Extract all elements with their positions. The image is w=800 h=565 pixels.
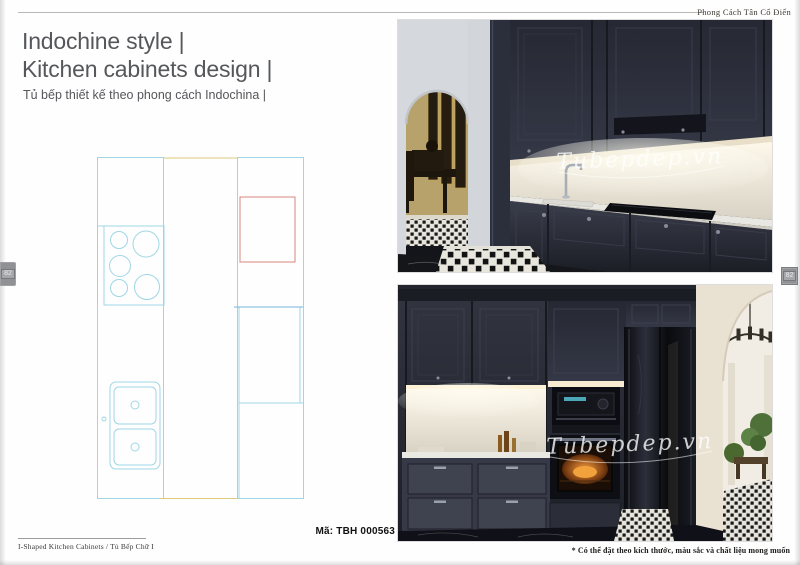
catalog-page: Phong Cách Tân Cổ Điển Indochine style |… xyxy=(0,0,800,565)
kitchen-photo-top: Tubepdep.vn xyxy=(398,20,772,272)
lit-niche xyxy=(398,383,550,458)
appliance-column xyxy=(548,301,626,531)
footer-rule xyxy=(18,538,146,539)
page-number-tab-left: 82 xyxy=(0,262,16,286)
plan-sink xyxy=(102,382,160,469)
footer-note: * Có thể đặt theo kích thước, màu sắc và… xyxy=(572,546,790,555)
page-number-right: 82 xyxy=(783,271,797,281)
kitchen-photo-bottom: Tubepdep.vn xyxy=(398,285,772,541)
header-label: Phong Cách Tân Cổ Điển xyxy=(697,7,791,17)
left-lower-drawers xyxy=(402,458,550,531)
page-subtitle: Tủ bếp thiết kế theo phong cách Indochin… xyxy=(23,88,266,102)
product-code: Mã: TBH 000563 xyxy=(316,526,396,537)
header-rule xyxy=(18,12,704,13)
plan-left-cabinet-run xyxy=(98,158,164,499)
page-number-left: 82 xyxy=(1,269,15,279)
page-number-tab-right: 82 xyxy=(781,267,798,285)
title-line-2: Kitchen cabinets design | xyxy=(22,55,272,83)
footer-category-label: I-Shaped Kitchen Cabinets / Tủ Bếp Chữ I xyxy=(18,542,154,551)
page-title: Indochine style | Kitchen cabinets desig… xyxy=(22,27,272,83)
refrigerator xyxy=(624,301,696,531)
kitchen-floor-plan xyxy=(97,157,305,500)
plan-refrigerator xyxy=(240,197,295,262)
title-line-1: Indochine style | xyxy=(22,27,272,55)
plan-walkway-lines xyxy=(160,158,237,499)
page-edge-bottom xyxy=(0,560,800,565)
plan-right-cabinet-run xyxy=(238,158,304,499)
cabinet-wall-bottom-photo xyxy=(398,289,723,541)
plan-cooktop xyxy=(104,226,164,305)
cabinet-run-top-photo xyxy=(490,20,772,272)
microwave xyxy=(552,387,620,425)
